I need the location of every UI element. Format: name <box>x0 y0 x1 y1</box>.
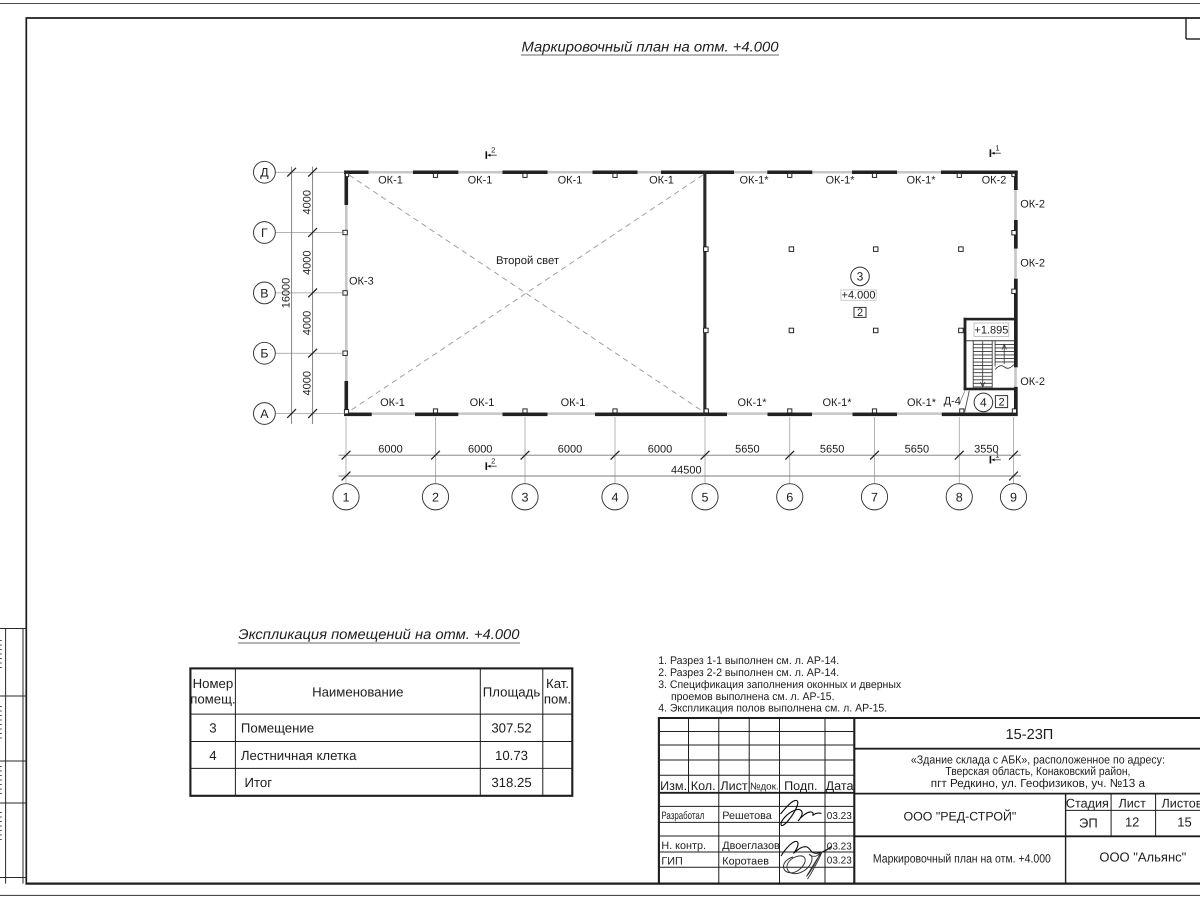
svg-text:Лист: Лист <box>720 779 748 793</box>
svg-text:5650: 5650 <box>735 444 759 456</box>
svg-text:5650: 5650 <box>820 444 844 456</box>
svg-text:8: 8 <box>956 490 963 504</box>
svg-text:Решетова: Решетова <box>722 810 772 822</box>
svg-text:03.23: 03.23 <box>827 856 852 867</box>
svg-text:4000: 4000 <box>301 311 313 335</box>
svg-text:1: 1 <box>995 144 999 153</box>
svg-text:ОК-1*: ОК-1* <box>737 397 767 409</box>
svg-text:ГИП: ГИП <box>661 856 682 868</box>
svg-text:Маркировочный план на отм. +4.: Маркировочный план на отм. +4.000 <box>873 851 1051 865</box>
svg-text:5: 5 <box>701 490 708 504</box>
svg-text:2: 2 <box>491 457 495 466</box>
svg-text:ОК-1: ОК-1 <box>649 175 674 187</box>
svg-text:проемов выполнена см. л. АР-15: проемов выполнена см. л. АР-15. <box>671 691 835 703</box>
svg-text:4. Экспликация полов выполнена: 4. Экспликация полов выполнена см. л. АР… <box>658 702 887 714</box>
svg-text:ОК-1: ОК-1 <box>561 397 586 409</box>
svg-text:Изм.: Изм. <box>660 779 687 793</box>
svg-text:3: 3 <box>857 270 864 284</box>
svg-text:ОК-2: ОК-2 <box>982 175 1007 187</box>
svg-text:Кат.: Кат. <box>546 676 569 691</box>
svg-text:16000: 16000 <box>280 278 292 309</box>
svg-text:ООО "РЕД-СТРОЙ": ООО "РЕД-СТРОЙ" <box>903 808 1016 823</box>
svg-text:15: 15 <box>1177 815 1191 830</box>
svg-text:4000: 4000 <box>301 190 313 214</box>
svg-text:пом.: пом. <box>544 692 571 707</box>
svg-text:2: 2 <box>491 146 495 155</box>
svg-text:Разработал: Разработал <box>661 810 704 822</box>
svg-text:Стадия: Стадия <box>1066 796 1109 810</box>
svg-text:ОК-2: ОК-2 <box>1020 376 1045 388</box>
svg-text:6000: 6000 <box>558 444 582 456</box>
svg-text:Д-4: Д-4 <box>944 396 961 408</box>
svg-text:4: 4 <box>611 490 618 504</box>
svg-text:Листов: Листов <box>1162 796 1200 810</box>
svg-text:5650: 5650 <box>905 444 929 456</box>
svg-text:Итог: Итог <box>245 775 273 790</box>
svg-text:ОК-1: ОК-1 <box>468 175 493 187</box>
svg-text:1. Разрез 1-1 выполнен см. л.: 1. Разрез 1-1 выполнен см. л. АР-14. <box>658 655 839 667</box>
svg-text:Второй свет: Второй свет <box>496 255 559 267</box>
svg-text:ОК-1: ОК-1 <box>558 175 583 187</box>
svg-text:А: А <box>260 407 269 421</box>
svg-text:ОК-1*: ОК-1* <box>906 175 936 187</box>
svg-text:6: 6 <box>786 490 793 504</box>
svg-text:Экспликация помещений на отм.: Экспликация помещений на отм. +4.000 <box>238 627 519 643</box>
svg-text:Маркировочный план на отм. +4.: Маркировочный план на отм. +4.000 <box>522 40 779 56</box>
svg-text:Н. контр.: Н. контр. <box>661 840 706 852</box>
svg-text:3: 3 <box>209 721 216 736</box>
svg-text:12: 12 <box>1125 815 1139 830</box>
svg-text:4: 4 <box>980 396 987 410</box>
svg-text:ОК-2: ОК-2 <box>1020 258 1045 270</box>
svg-text:44500: 44500 <box>671 465 702 477</box>
svg-text:ОК-2: ОК-2 <box>1020 199 1045 211</box>
svg-text:Кол.: Кол. <box>691 779 716 793</box>
svg-text:Площадь: Площадь <box>483 685 541 700</box>
svg-text:пгт Редкино, ул. Геофизиков, у: пгт Редкино, ул. Геофизиков, уч. №13 а <box>931 777 1146 790</box>
svg-text:ЭП: ЭП <box>1079 815 1098 830</box>
svg-text:4: 4 <box>209 748 216 763</box>
svg-text:Лестничная клетка: Лестничная клетка <box>241 748 357 763</box>
svg-text:307.52: 307.52 <box>491 721 531 736</box>
svg-text:ОК-3: ОК-3 <box>349 275 374 287</box>
svg-text:3550: 3550 <box>974 444 998 456</box>
svg-text:Г: Г <box>261 226 268 240</box>
svg-text:1: 1 <box>342 490 349 504</box>
svg-text:ОК-1: ОК-1 <box>380 397 405 409</box>
svg-text:9: 9 <box>1010 490 1017 504</box>
svg-text:Дата: Дата <box>826 779 854 793</box>
svg-text:Номер: Номер <box>193 676 234 691</box>
svg-text:2. Разрез 2-2 выполнен см. л.: 2. Разрез 2-2 выполнен см. л. АР-14. <box>658 667 839 679</box>
svg-text:Д: Д <box>260 166 269 180</box>
svg-text:Лист: Лист <box>1119 796 1147 810</box>
svg-text:Б: Б <box>260 347 268 361</box>
svg-text:ОК-1: ОК-1 <box>470 397 495 409</box>
svg-text:№док.: №док. <box>750 781 779 792</box>
svg-text:4000: 4000 <box>301 250 313 274</box>
svg-text:Двоеглазов: Двоеглазов <box>722 840 780 852</box>
svg-text:+4.000: +4.000 <box>842 290 876 302</box>
svg-text:15-23П: 15-23П <box>1005 727 1053 743</box>
svg-text:ОК-1: ОК-1 <box>378 175 403 187</box>
svg-text:ОК-1*: ОК-1* <box>825 175 855 187</box>
svg-text:ООО "Альянс": ООО "Альянс" <box>1099 850 1186 865</box>
svg-text:2: 2 <box>998 396 1004 408</box>
svg-text:3. Спецификация заполнения око: 3. Спецификация заполнения оконных и две… <box>658 679 901 691</box>
svg-text:Наименование: Наименование <box>312 685 403 700</box>
svg-text:3: 3 <box>521 490 528 504</box>
svg-text:7: 7 <box>871 490 878 504</box>
svg-text:Подп.: Подп. <box>784 779 817 793</box>
svg-text:318.25: 318.25 <box>491 775 531 790</box>
svg-text:03.23: 03.23 <box>827 811 852 822</box>
svg-text:+1.895: +1.895 <box>974 325 1008 337</box>
svg-text:В: В <box>260 286 268 300</box>
svg-text:помещ.: помещ. <box>190 692 235 707</box>
svg-text:2: 2 <box>857 307 863 319</box>
svg-text:6000: 6000 <box>648 444 672 456</box>
svg-text:ОК-1*: ОК-1* <box>739 175 769 187</box>
svg-text:Коротаев: Коротаев <box>722 856 769 868</box>
svg-text:6000: 6000 <box>378 444 402 456</box>
svg-text:4000: 4000 <box>301 371 313 395</box>
svg-text:6000: 6000 <box>468 444 492 456</box>
svg-text:2: 2 <box>432 490 439 504</box>
svg-text:ОК-1*: ОК-1* <box>822 397 852 409</box>
svg-text:10.73: 10.73 <box>495 748 528 763</box>
svg-text:Помещение: Помещение <box>241 721 314 736</box>
svg-text:ОК-1*: ОК-1* <box>907 397 937 409</box>
